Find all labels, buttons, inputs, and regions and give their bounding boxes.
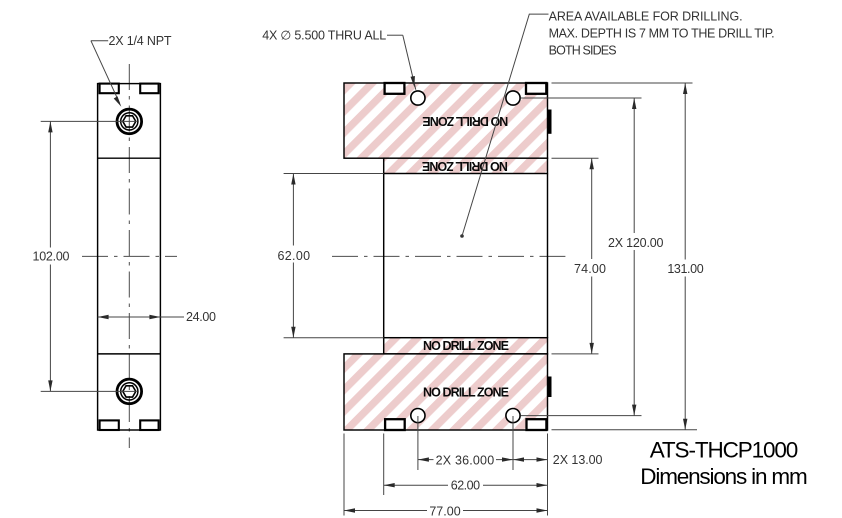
svg-text:77.00: 77.00 (429, 505, 460, 518)
svg-text:62.00: 62.00 (278, 249, 311, 263)
svg-text:NO DRILL ZONE: NO DRILL ZONE (423, 386, 509, 400)
svg-text:NO DRILL ZONE: NO DRILL ZONE (423, 339, 509, 353)
svg-text:ATS-THCP1000: ATS-THCP1000 (650, 437, 799, 462)
svg-text:2X 13.00: 2X 13.00 (553, 453, 603, 467)
svg-text:Dimensions in mm: Dimensions in mm (640, 464, 807, 489)
svg-text:102.00: 102.00 (33, 249, 70, 263)
svg-text:74.00: 74.00 (574, 262, 606, 276)
svg-text:2X 36.000: 2X 36.000 (436, 453, 495, 467)
svg-text:4X ∅ 5.500 THRU ALL: 4X ∅ 5.500 THRU ALL (262, 29, 386, 43)
svg-text:2X 1/4 NPT: 2X 1/4 NPT (109, 34, 172, 48)
svg-text:NO DRILL ZONE: NO DRILL ZONE (422, 159, 508, 173)
svg-text:2X 120.00: 2X 120.00 (608, 236, 664, 250)
svg-text:24.00: 24.00 (186, 310, 216, 324)
svg-text:MAX. DEPTH IS 7 MM TO THE DRIL: MAX. DEPTH IS 7 MM TO THE DRILL TIP. (549, 26, 775, 40)
svg-text:62.00: 62.00 (451, 479, 480, 493)
svg-text:131.00: 131.00 (667, 262, 703, 276)
svg-text:BOTH SIDES: BOTH SIDES (549, 43, 617, 57)
svg-text:AREA AVAILABLE FOR DRILLING.: AREA AVAILABLE FOR DRILLING. (549, 10, 743, 24)
